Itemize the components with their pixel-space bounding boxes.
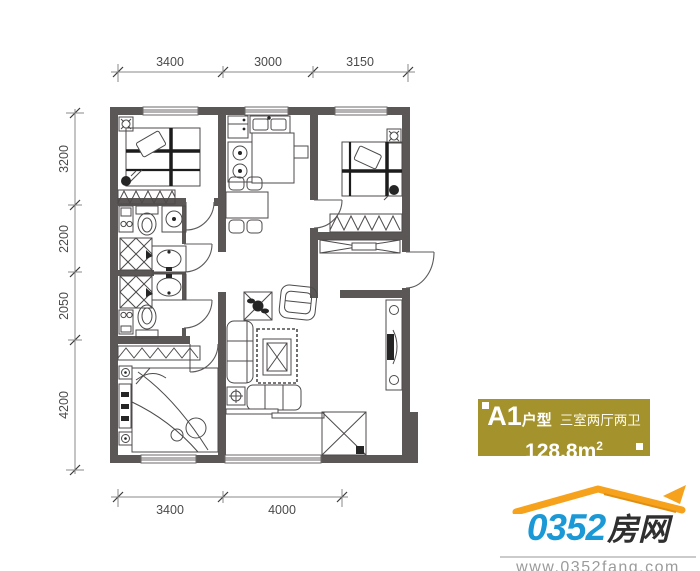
dining-table-icon <box>226 192 268 218</box>
dining-chair-icon <box>247 220 262 233</box>
window <box>225 455 321 463</box>
washbasin-icon <box>152 246 186 272</box>
dining-chair-icon <box>229 220 244 233</box>
counter-end <box>294 146 308 158</box>
entry-hall <box>320 240 400 253</box>
equipment-platform <box>322 412 366 455</box>
dim-label-bottom-2: 4000 <box>268 503 296 517</box>
logo-text: 0352房网 <box>500 511 696 553</box>
door-arc-bedroom2 <box>186 202 214 230</box>
dim-label-left-1: 3200 <box>57 145 71 173</box>
dim-label-top-1: 3400 <box>156 55 184 69</box>
badge-deco-square <box>636 443 643 450</box>
bedroom2 <box>118 117 200 204</box>
kitchen-sink-icon <box>250 116 290 133</box>
window <box>141 455 196 463</box>
logo-number: 0352 <box>527 507 605 548</box>
speaker-icon <box>119 366 132 379</box>
balcony-slider <box>226 409 324 418</box>
dim-label-bottom-1: 3400 <box>156 503 184 517</box>
bathroom-lower <box>119 274 186 338</box>
bed-icon <box>132 368 218 452</box>
dim-label-left-4: 4200 <box>57 391 71 419</box>
living-room <box>226 284 402 455</box>
toilet-icon <box>136 206 158 235</box>
dresser-icon <box>119 384 131 428</box>
dining-area <box>226 177 268 233</box>
washbasin-icon <box>152 274 186 300</box>
logo-name: 房网 <box>607 512 669 547</box>
unit-suffix: 户型 <box>522 412 552 429</box>
entry-closet <box>320 240 400 253</box>
unit-name: A1 <box>487 401 522 431</box>
sofa-icon-large <box>227 321 253 383</box>
site-logo: 0352房网 www.0352fang.com <box>500 484 696 571</box>
shower-icon <box>120 238 153 270</box>
unit-area-value: 128.8m <box>525 440 596 463</box>
dim-label-left-3: 2050 <box>57 292 71 320</box>
unit-rooms: 三室两厅两卫 <box>560 413 641 428</box>
speaker-icon <box>119 432 132 445</box>
dim-label-top-2: 3000 <box>254 55 282 69</box>
shower-icon <box>120 276 153 308</box>
bathroom-upper <box>119 206 186 272</box>
door-arc-bath-upper <box>184 244 212 272</box>
dimension-top: 3400 3000 3150 <box>111 55 415 82</box>
cabinet-icon <box>119 310 133 334</box>
bed-icon <box>126 128 200 186</box>
window <box>245 107 288 115</box>
dining-chair-icon <box>229 177 244 190</box>
bedroom3 <box>330 129 402 232</box>
unit-area-sup: 2 <box>596 439 603 453</box>
plant-icon <box>244 292 272 320</box>
kitchen <box>228 116 308 183</box>
dimension-bottom: 3400 4000 <box>111 489 348 517</box>
door-arc-bath-lower <box>184 300 212 328</box>
side-table-icon <box>227 387 245 405</box>
interior-walls <box>118 115 402 455</box>
window <box>335 107 387 115</box>
tv-cabinet-icon <box>386 300 402 390</box>
wardrobe-icon <box>118 346 200 360</box>
floorplan-page: 3400 3000 3150 3200 2200 2050 4200 <box>0 0 700 571</box>
window <box>143 107 198 115</box>
kitchen-counter <box>252 133 294 183</box>
badge-deco-square <box>482 402 489 409</box>
wardrobe-icon <box>330 214 402 232</box>
unit-area: 128.8m2 <box>478 434 650 464</box>
sofa-icon-small <box>247 385 301 410</box>
coffee-table-icon <box>263 339 291 375</box>
stove-icon <box>228 142 252 182</box>
door-arc-entry <box>406 252 434 288</box>
dimension-left: 3200 2200 2050 4200 <box>57 108 84 475</box>
master-bedroom <box>118 346 218 452</box>
dim-label-top-3: 3150 <box>346 55 374 69</box>
toilet-icon <box>136 305 158 338</box>
nightstand-icon <box>387 129 401 143</box>
fridge-icon <box>228 116 248 138</box>
cabinet-icon <box>119 206 133 232</box>
dim-label-left-2: 2200 <box>57 225 71 253</box>
logo-url: www.0352fang.com <box>500 556 696 571</box>
unit-badge: A1户型三室两厅两卫 128.8m2 <box>478 399 650 456</box>
